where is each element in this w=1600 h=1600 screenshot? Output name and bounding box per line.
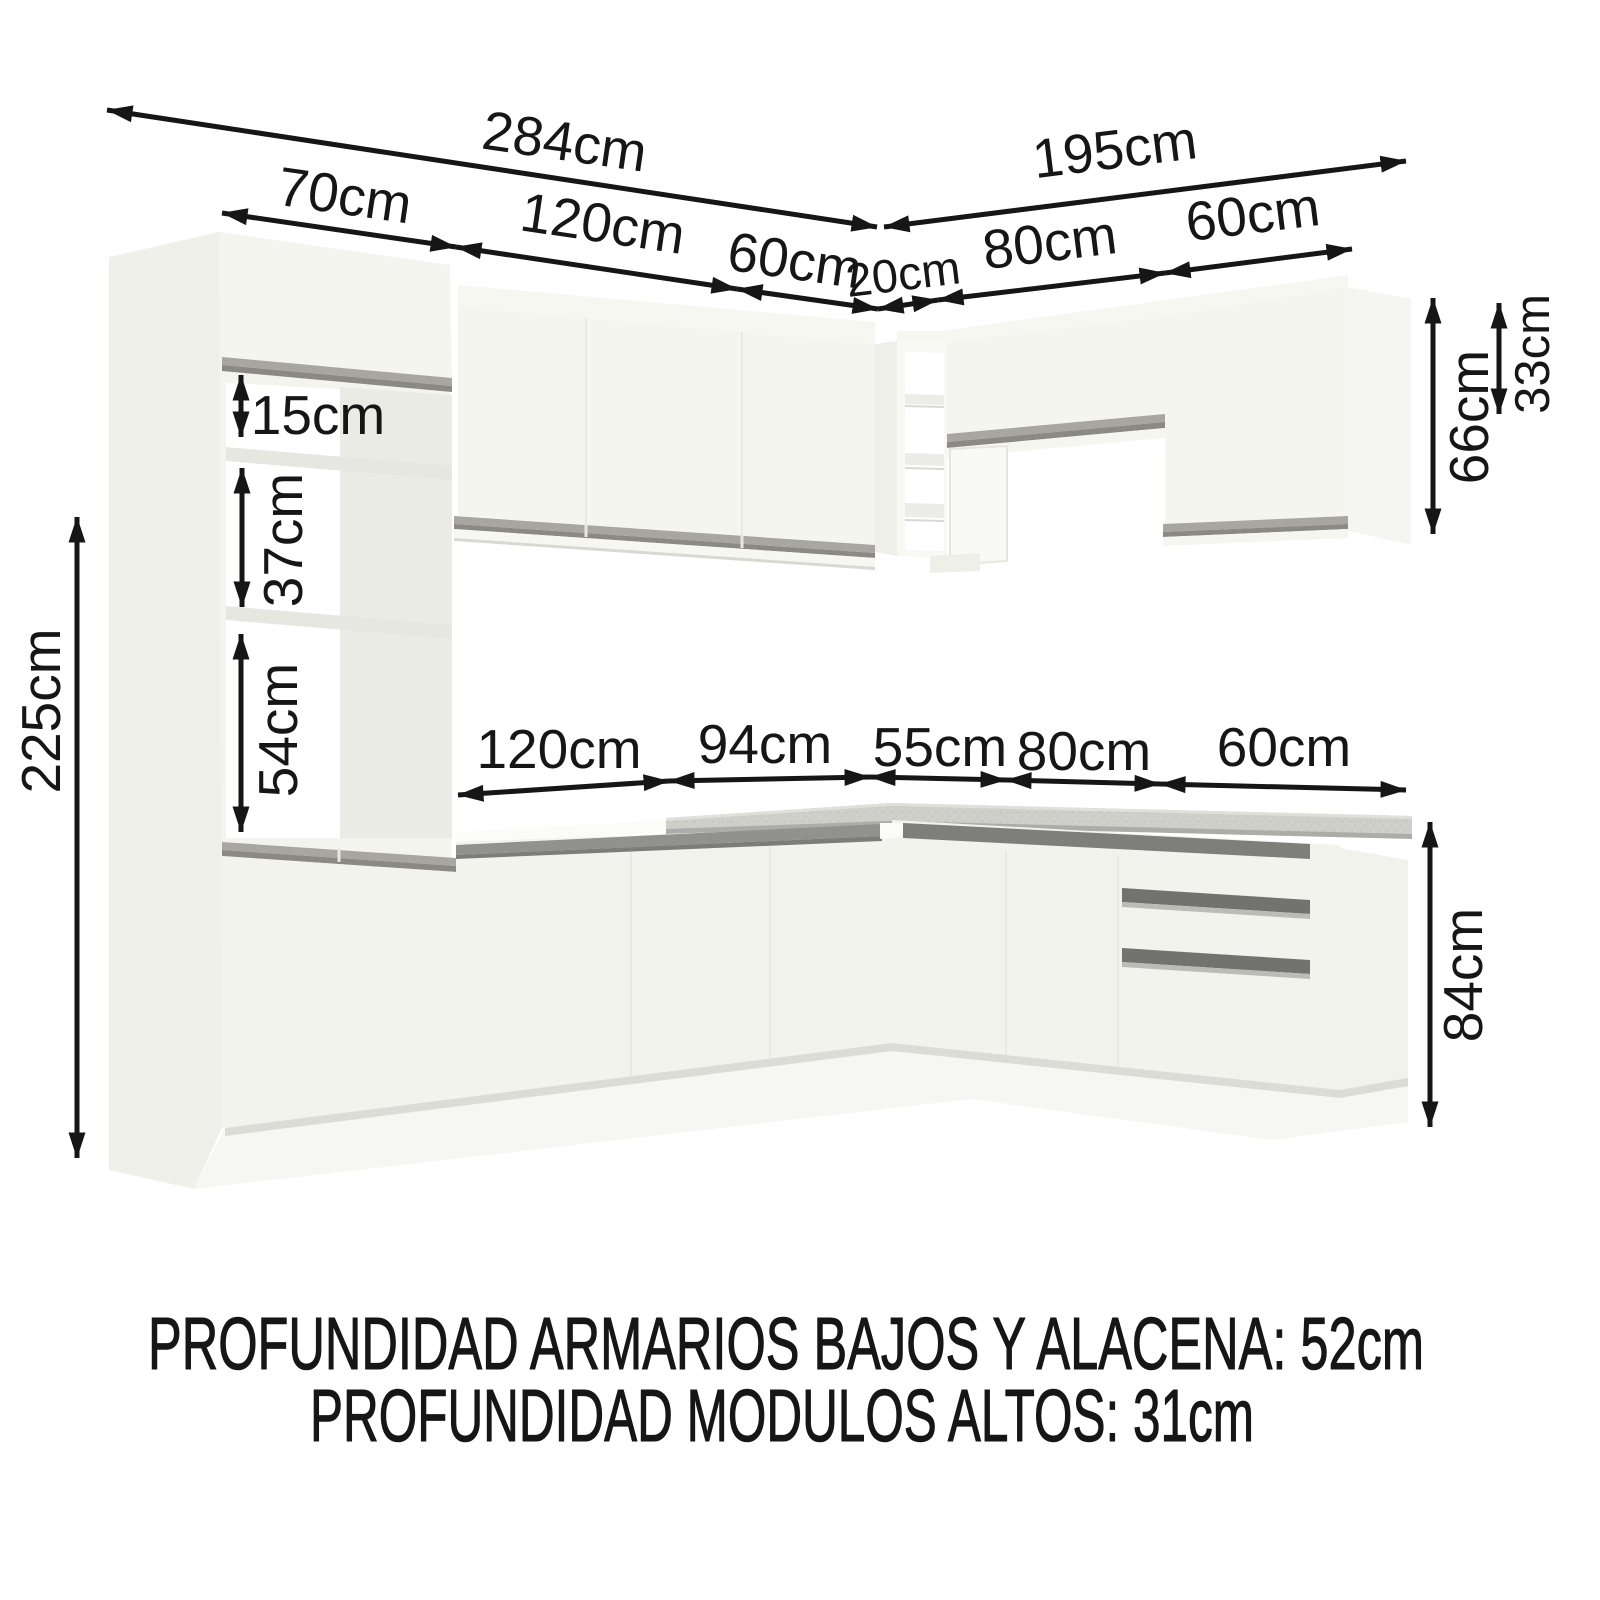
svg-text:80cm: 80cm xyxy=(1017,720,1152,782)
svg-text:PROFUNDIDAD ARMARIOS BAJOS Y A: PROFUNDIDAD ARMARIOS BAJOS Y ALACENA: 52… xyxy=(148,1302,1424,1385)
svg-text:66cm: 66cm xyxy=(1438,350,1500,485)
svg-text:225cm: 225cm xyxy=(10,628,72,793)
svg-text:94cm: 94cm xyxy=(698,713,833,775)
svg-text:120cm: 120cm xyxy=(476,718,641,780)
svg-text:PROFUNDIDAD MODULOS ALTOS: 31c: PROFUNDIDAD MODULOS ALTOS: 31cm xyxy=(310,1374,1254,1457)
svg-text:55cm: 55cm xyxy=(873,716,1008,778)
svg-text:37cm: 37cm xyxy=(252,473,314,608)
svg-text:54cm: 54cm xyxy=(247,663,309,798)
svg-text:33cm: 33cm xyxy=(1506,294,1560,414)
svg-text:60cm: 60cm xyxy=(1217,716,1352,778)
svg-text:15cm: 15cm xyxy=(251,384,386,446)
svg-text:84cm: 84cm xyxy=(1432,908,1494,1043)
